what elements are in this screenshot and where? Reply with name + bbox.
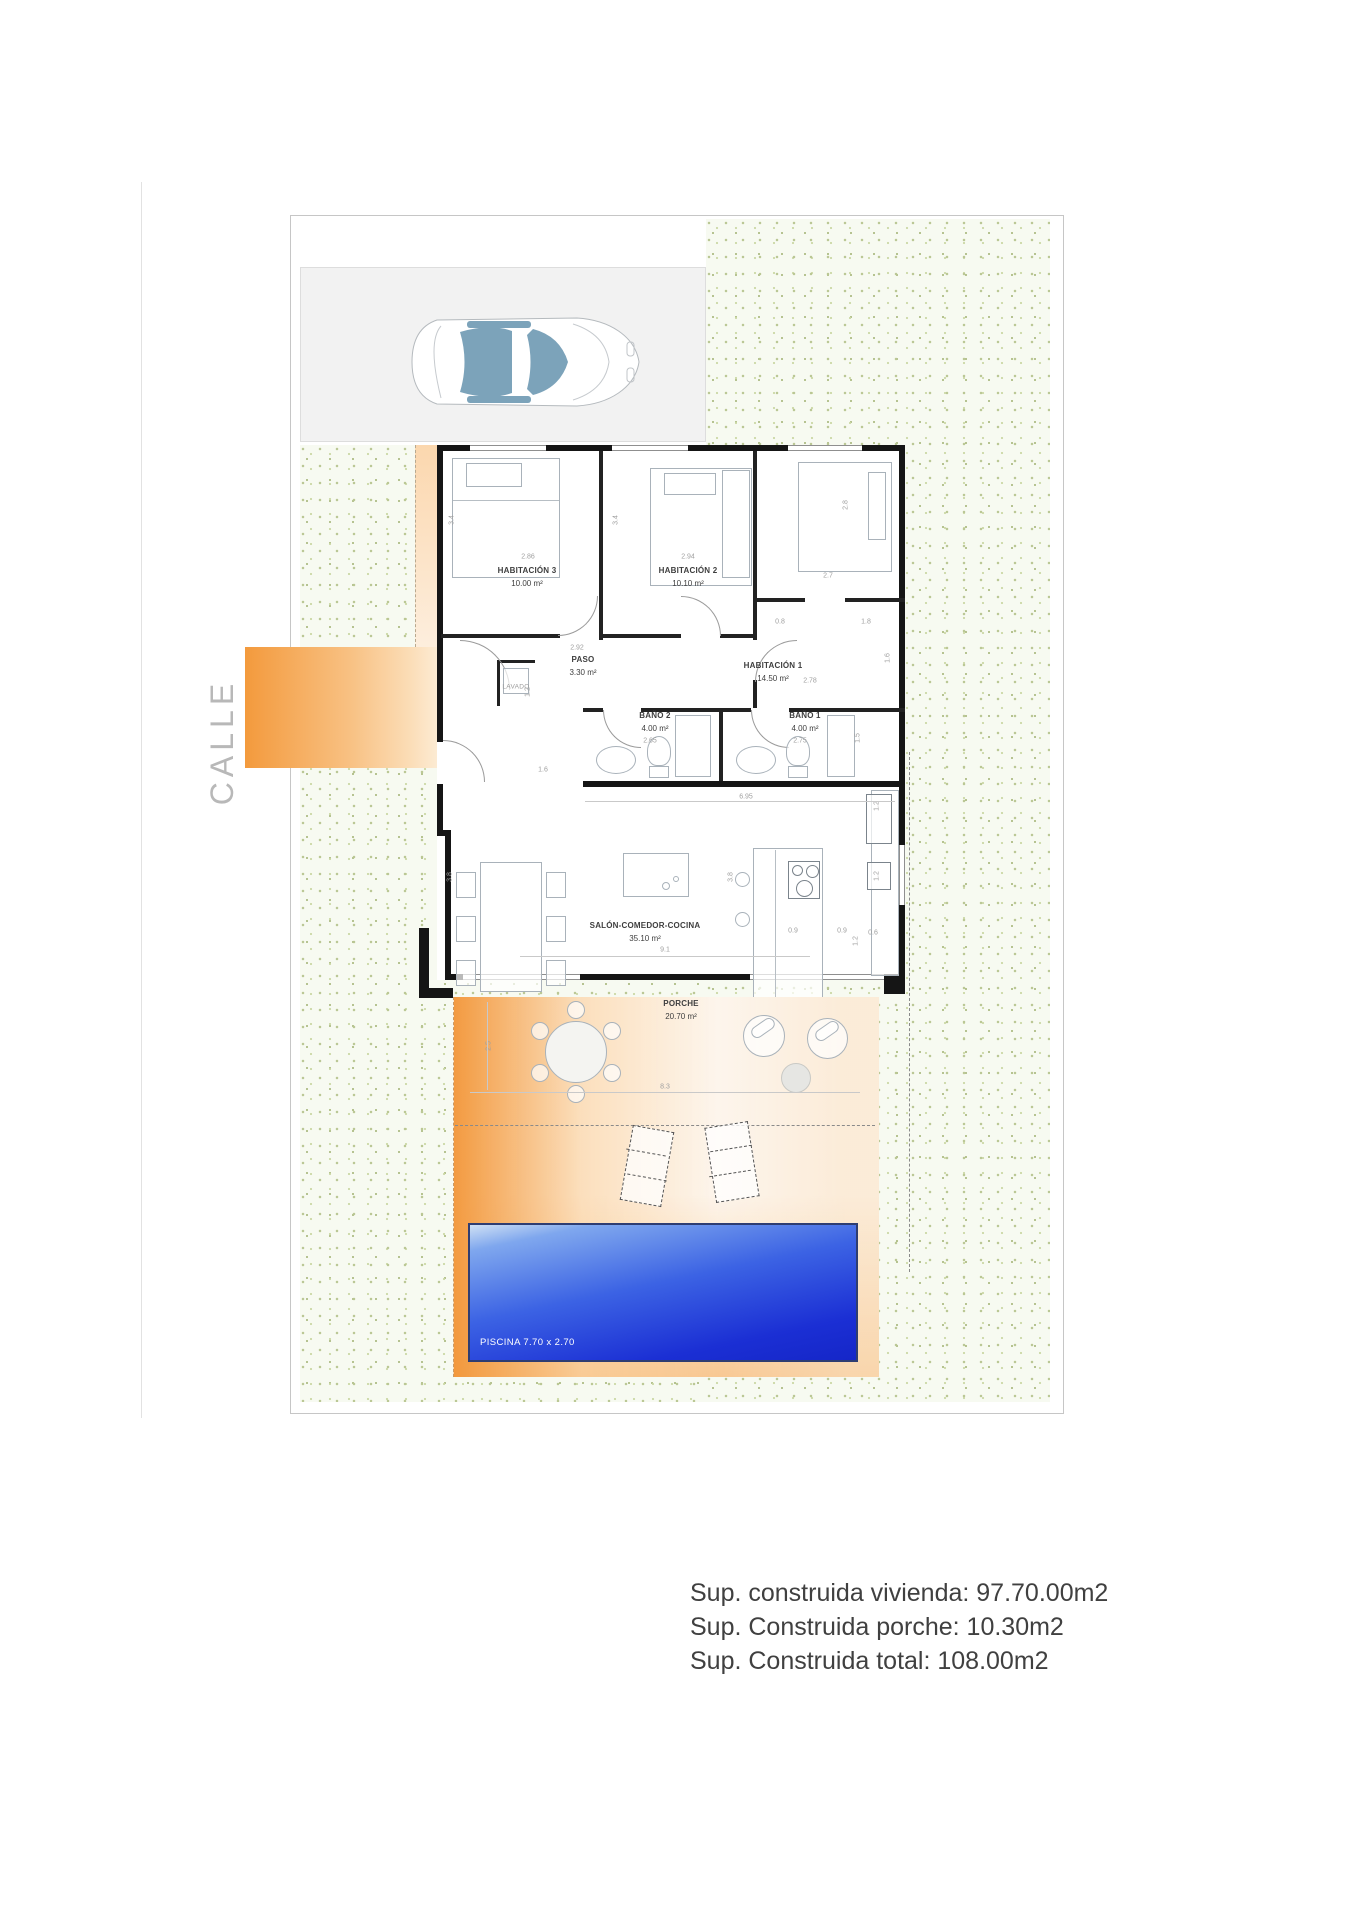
setback-dash-west bbox=[415, 445, 416, 647]
wall-bed-bottom-b bbox=[600, 634, 681, 638]
toilet-bano2-tank bbox=[649, 766, 669, 778]
dim-label: 2.94 bbox=[681, 554, 695, 561]
summary-line-vivienda: Sup. construida vivienda: 97.70.00m2 bbox=[690, 1576, 1108, 1610]
porch-table bbox=[545, 1021, 607, 1083]
room-name: SALÓN-COMEDOR-COCINA bbox=[590, 919, 701, 932]
room-name: HABITACIÓN 1 bbox=[744, 659, 803, 672]
wall-banos-south bbox=[583, 781, 905, 787]
room-area: 4.00 m² bbox=[639, 722, 670, 735]
wall-west-mid bbox=[437, 647, 443, 742]
toilet-bano1-tank bbox=[788, 766, 808, 778]
cooktop-burner bbox=[792, 865, 803, 876]
dim-label: 9.1 bbox=[660, 947, 670, 954]
room-label-bano1: BAÑO 1 4.00 m² bbox=[789, 709, 820, 735]
room-area: 35.10 m² bbox=[590, 932, 701, 945]
dim-label: 3.8 bbox=[728, 872, 735, 882]
room-area: 4.00 m² bbox=[789, 722, 820, 735]
tv-cabinet bbox=[623, 853, 689, 897]
dim-label: 1.8 bbox=[861, 619, 871, 626]
dim-label: 2.92 bbox=[570, 645, 584, 652]
dim-label: 2.86 bbox=[521, 554, 535, 561]
room-name: PASO bbox=[569, 653, 596, 666]
wall-west-lower bbox=[437, 784, 443, 836]
window-hab2 bbox=[612, 445, 688, 451]
dim-label: 1.6 bbox=[885, 653, 892, 663]
room-area: 20.70 m² bbox=[663, 1010, 698, 1023]
room-label-porche: PORCHE 20.70 m² bbox=[663, 997, 698, 1023]
bed-hab1-pillow bbox=[868, 472, 886, 540]
dim-label: 1.2 bbox=[853, 936, 860, 946]
tv-cabinet-knob bbox=[662, 882, 670, 890]
room-label-bano2: BAÑO 2 4.00 m² bbox=[639, 709, 670, 735]
wall-se-step bbox=[884, 980, 905, 994]
dim-label: 2.65 bbox=[643, 738, 657, 745]
dim-label: 1.6 bbox=[538, 767, 548, 774]
wall-bed-bottom-a bbox=[441, 634, 560, 638]
sink-bano1 bbox=[736, 746, 776, 774]
wall-bed-bottom-c bbox=[720, 634, 753, 638]
porch-chair bbox=[567, 1085, 585, 1103]
dim-label: 0.6 bbox=[868, 930, 878, 937]
dim-label: 0.8 bbox=[775, 619, 785, 626]
room-label-paso: PASO 3.30 m² bbox=[569, 653, 596, 679]
dim-label: 2.75 bbox=[793, 738, 807, 745]
wall-hab2-hab1 bbox=[753, 451, 757, 640]
closet-bano1 bbox=[827, 715, 855, 777]
pool-label: PISCINA 7.70 x 2.70 bbox=[480, 1337, 575, 1348]
dining-table bbox=[480, 862, 542, 992]
wall-salon-west bbox=[445, 836, 451, 980]
surface-summary: Sup. construida vivienda: 97.70.00m2 Sup… bbox=[690, 1576, 1108, 1678]
wardrobe-hab2 bbox=[722, 470, 750, 578]
dim-label: 6.95 bbox=[739, 794, 753, 801]
bed-hab3-pillow bbox=[466, 463, 522, 487]
wall-lavado-top bbox=[497, 660, 535, 663]
dim-line bbox=[470, 1092, 860, 1093]
dim-label: 2.78 bbox=[803, 678, 817, 685]
porch-chair bbox=[603, 1064, 621, 1082]
room-area: 3.30 m² bbox=[569, 666, 596, 679]
kitchen-island-line bbox=[775, 850, 776, 998]
dining-chair bbox=[546, 916, 566, 942]
dim-label: 3.8 bbox=[447, 872, 454, 882]
window-hab3 bbox=[470, 445, 546, 451]
floor-plan-page: CALLE bbox=[0, 0, 1359, 1920]
wall-banos-top-a bbox=[583, 708, 603, 712]
room-name: HABITACIÓN 2 bbox=[659, 564, 718, 577]
shower-bano2 bbox=[675, 715, 711, 777]
room-name: HABITACIÓN 3 bbox=[498, 564, 557, 577]
dim-label: 0.9 bbox=[788, 928, 798, 935]
dim-label: 3.4 bbox=[613, 515, 620, 525]
side-table bbox=[781, 1063, 811, 1093]
dining-chair bbox=[456, 916, 476, 942]
dining-chair bbox=[546, 960, 566, 986]
wall-sw-step-h bbox=[419, 988, 453, 998]
dim-label: 1.2 bbox=[525, 687, 532, 697]
dim-label: 0.9 bbox=[837, 928, 847, 935]
wall-banos-divider bbox=[719, 712, 723, 781]
dim-label: 8.3 bbox=[660, 1084, 670, 1091]
dim-label: 1.5 bbox=[855, 733, 862, 743]
summary-line-porche: Sup. Construida porche: 10.30m2 bbox=[690, 1610, 1108, 1644]
porch-chair bbox=[603, 1022, 621, 1040]
dim-label: 2.8 bbox=[843, 500, 850, 510]
room-label-hab1: HABITACIÓN 1 14.50 m² bbox=[744, 659, 803, 685]
street-label: CALLE bbox=[202, 682, 242, 802]
setback-dash-east bbox=[909, 752, 910, 1272]
bed-hab3-blanket-line bbox=[453, 500, 559, 501]
cooktop-burner bbox=[806, 865, 819, 878]
kitchen-stool bbox=[735, 912, 750, 927]
sink-bano2 bbox=[596, 746, 636, 774]
window-hab1 bbox=[788, 445, 862, 451]
room-label-salon: SALÓN-COMEDOR-COCINA 35.10 m² bbox=[590, 919, 701, 945]
wall-south-b bbox=[580, 974, 750, 980]
dining-chair bbox=[456, 960, 476, 986]
room-area: 10.10 m² bbox=[659, 577, 718, 590]
window-east bbox=[899, 845, 905, 905]
dim-label: 2.7 bbox=[823, 573, 833, 580]
dim-line bbox=[487, 1002, 488, 1090]
dining-chair bbox=[546, 872, 566, 898]
bed-hab2-pillow bbox=[664, 473, 716, 495]
room-area: 14.50 m² bbox=[744, 672, 803, 685]
dim-label: 1.2 bbox=[874, 801, 881, 811]
wall-west-upper bbox=[437, 445, 443, 647]
cooktop-burner bbox=[796, 880, 813, 897]
wall-hab3-hab2 bbox=[599, 451, 603, 640]
porch-chair bbox=[531, 1064, 549, 1082]
car-icon bbox=[405, 312, 645, 412]
wall-hab1-partial-a bbox=[757, 598, 805, 602]
dim-label: 3.4 bbox=[449, 515, 456, 525]
dim-label: 1.2 bbox=[874, 871, 881, 881]
room-area: 10.00 m² bbox=[498, 577, 557, 590]
dim-line bbox=[585, 801, 895, 802]
porch-chair bbox=[567, 1001, 585, 1019]
wall-hab1-partial-b bbox=[845, 598, 905, 602]
room-name: BAÑO 2 bbox=[639, 709, 670, 722]
entrance-path-band bbox=[245, 647, 437, 768]
room-label-hab3: HABITACIÓN 3 10.00 m² bbox=[498, 564, 557, 590]
tv-cabinet-knob bbox=[673, 876, 679, 882]
room-name: PORCHE bbox=[663, 997, 698, 1010]
pool: PISCINA 7.70 x 2.70 bbox=[468, 1223, 858, 1362]
entrance-path-vertical bbox=[415, 445, 437, 647]
summary-line-total: Sup. Construida total: 108.00m2 bbox=[690, 1644, 1108, 1678]
kitchen-stool bbox=[735, 872, 750, 887]
porch-setback-dash bbox=[455, 1125, 875, 1126]
dining-chair bbox=[456, 872, 476, 898]
room-name: BAÑO 1 bbox=[789, 709, 820, 722]
porch-chair bbox=[531, 1022, 549, 1040]
room-label-hab2: HABITACIÓN 2 10.10 m² bbox=[659, 564, 718, 590]
dim-line bbox=[520, 956, 810, 957]
street-edge-line bbox=[141, 182, 142, 1418]
